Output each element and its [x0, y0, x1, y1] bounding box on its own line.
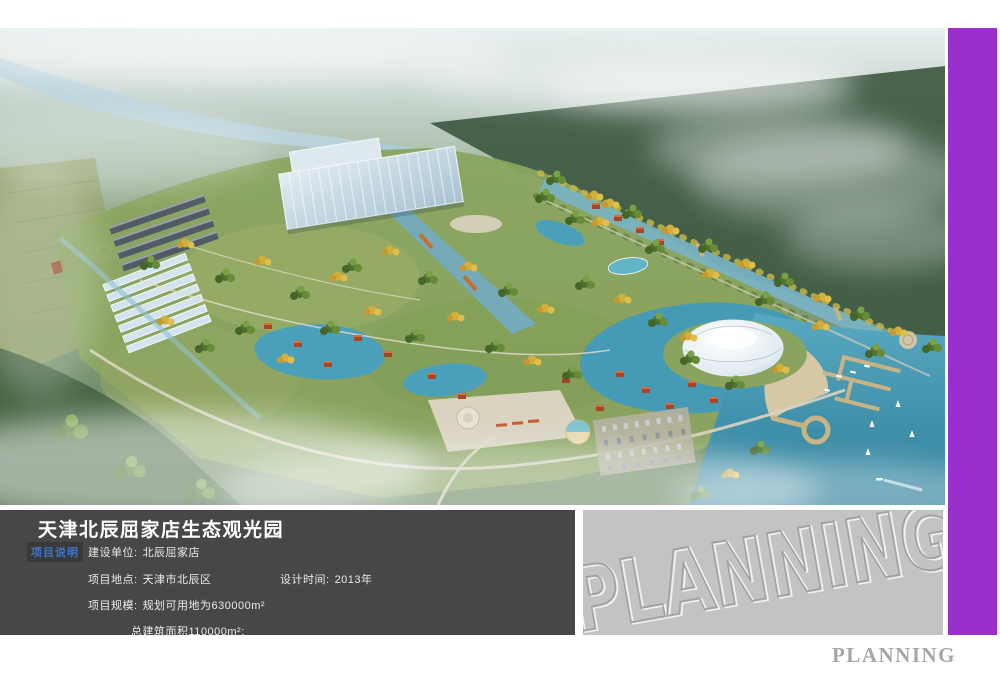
section-label-project-description: 项目说明 — [27, 542, 83, 562]
footer-brand-planning: PLANNING — [832, 643, 956, 668]
purple-accent-bar — [948, 28, 997, 635]
field-project-scale: 项目规模:规划可用地为630000m² — [88, 597, 265, 613]
embossed-planning-watermark: PLANNING PLANNING — [583, 510, 943, 635]
project-location-value: 天津市北辰区 — [143, 574, 212, 586]
project-title: 天津北辰屈家店生态观光园 — [38, 515, 284, 542]
planning-board-page: 天津北辰屈家店生态观光园 项目说明 建设单位:北辰屈家店 项目地点:天津市北辰区… — [0, 0, 1000, 678]
watermark-canvas: PLANNING PLANNING — [583, 510, 943, 635]
aerial-rendering-canvas — [0, 28, 945, 505]
construction-unit-value: 北辰屈家店 — [143, 547, 201, 559]
field-construction-unit: 建设单位:北辰屈家店 — [88, 544, 200, 560]
project-scale-line2: 总建筑面积110000m²; — [131, 626, 245, 638]
hall-forecourt — [450, 215, 502, 233]
watermark-outline-layer: PLANNING — [583, 510, 943, 635]
design-time-label: 设计时间: — [280, 574, 330, 586]
field-project-scale-line2: 总建筑面积110000m²; — [131, 623, 245, 639]
design-time-value: 2013年 — [335, 574, 373, 586]
field-design-time: 设计时间:2013年 — [280, 571, 373, 587]
aerial-rendering — [0, 28, 945, 505]
project-scale-label: 项目规模: — [88, 600, 138, 612]
field-project-location: 项目地点:天津市北辰区 — [88, 571, 212, 587]
project-info-panel: 天津北辰屈家店生态观光园 项目说明 建设单位:北辰屈家店 项目地点:天津市北辰区… — [0, 510, 575, 635]
project-scale-line1: 规划可用地为630000m² — [143, 600, 266, 612]
project-location-label: 项目地点: — [88, 574, 138, 586]
watermark-panel: PLANNING PLANNING — [583, 510, 943, 635]
construction-unit-label: 建设单位: — [88, 547, 138, 559]
